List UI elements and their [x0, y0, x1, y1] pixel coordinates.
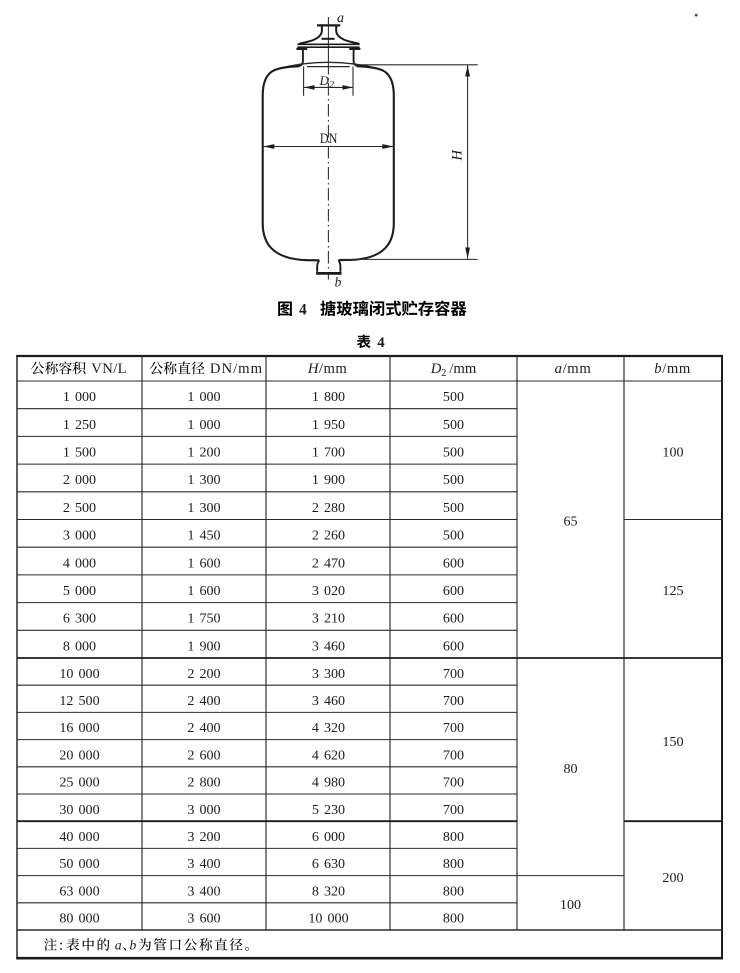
- svg-text:2 800: 2 800: [187, 775, 220, 791]
- svg-text:80: 80: [563, 761, 577, 777]
- svg-text:700: 700: [443, 720, 464, 736]
- svg-text:a: a: [115, 938, 122, 953]
- svg-text:1 600: 1 600: [187, 555, 220, 571]
- svg-text:H/mm: H/mm: [307, 361, 348, 377]
- svg-text:6 630: 6 630: [312, 856, 345, 872]
- svg-text:2 260: 2 260: [312, 528, 345, 544]
- svg-text:3 400: 3 400: [187, 883, 220, 899]
- svg-text:63 000: 63 000: [59, 883, 99, 899]
- svg-text:H: H: [450, 148, 466, 161]
- svg-text:2 200: 2 200: [187, 666, 220, 682]
- svg-text:700: 700: [443, 802, 464, 818]
- svg-text:10 000: 10 000: [59, 666, 99, 682]
- svg-text:700: 700: [443, 666, 464, 682]
- svg-text:2: 2: [329, 81, 334, 91]
- svg-text:2 400: 2 400: [187, 720, 220, 736]
- svg-text:600: 600: [443, 638, 464, 654]
- svg-text:1 750: 1 750: [187, 611, 220, 627]
- svg-text:200: 200: [662, 870, 683, 886]
- svg-text:4: 4: [377, 335, 385, 351]
- svg-text:4 620: 4 620: [312, 747, 345, 763]
- svg-text:1 300: 1 300: [187, 500, 220, 516]
- svg-text:700: 700: [443, 747, 464, 763]
- svg-text:DN: DN: [320, 131, 338, 147]
- svg-text:b: b: [335, 275, 342, 290]
- svg-text:150: 150: [662, 734, 683, 750]
- svg-text:3 300: 3 300: [312, 666, 345, 682]
- svg-text:1 700: 1 700: [312, 444, 345, 460]
- svg-text:125: 125: [662, 583, 683, 599]
- svg-text:25 000: 25 000: [59, 775, 99, 791]
- svg-text:500: 500: [443, 472, 464, 488]
- svg-text:2 000: 2 000: [63, 472, 96, 488]
- svg-text:1 200: 1 200: [187, 444, 220, 460]
- svg-text:3 460: 3 460: [312, 638, 345, 654]
- svg-text:65: 65: [563, 514, 577, 530]
- svg-text:500: 500: [443, 500, 464, 516]
- svg-text:4 000: 4 000: [63, 555, 96, 571]
- svg-text:700: 700: [443, 693, 464, 709]
- svg-text:3 020: 3 020: [312, 583, 345, 599]
- svg-text:VN/L: VN/L: [91, 361, 127, 377]
- svg-text:100: 100: [662, 444, 683, 460]
- svg-text:20 000: 20 000: [59, 747, 99, 763]
- svg-text:2 500: 2 500: [63, 500, 96, 516]
- svg-text:2 600: 2 600: [187, 747, 220, 763]
- svg-text:8 000: 8 000: [63, 638, 96, 654]
- svg-text:500: 500: [443, 444, 464, 460]
- svg-text:1 900: 1 900: [312, 472, 345, 488]
- svg-text:1 800: 1 800: [312, 389, 345, 405]
- svg-text:1 950: 1 950: [312, 417, 345, 433]
- svg-text:D: D: [319, 73, 330, 88]
- svg-text:3 460: 3 460: [312, 693, 345, 709]
- svg-text:3 400: 3 400: [187, 856, 220, 872]
- svg-text:3 210: 3 210: [312, 611, 345, 627]
- svg-text:1 600: 1 600: [187, 583, 220, 599]
- svg-text:800: 800: [443, 856, 464, 872]
- svg-text:2 280: 2 280: [312, 500, 345, 516]
- svg-text:3 200: 3 200: [187, 829, 220, 845]
- svg-text:3 600: 3 600: [187, 911, 220, 927]
- svg-text:600: 600: [443, 583, 464, 599]
- svg-text:2 400: 2 400: [187, 693, 220, 709]
- svg-text:a: a: [337, 11, 344, 26]
- svg-text:100: 100: [560, 897, 581, 913]
- svg-text:4 980: 4 980: [312, 775, 345, 791]
- svg-text:1 000: 1 000: [187, 389, 220, 405]
- svg-text:50 000: 50 000: [59, 856, 99, 872]
- svg-text:1 300: 1 300: [187, 472, 220, 488]
- svg-text:4: 4: [299, 302, 307, 319]
- svg-text:3 000: 3 000: [63, 528, 96, 544]
- svg-text:8 320: 8 320: [312, 883, 345, 899]
- svg-text:1 250: 1 250: [63, 417, 96, 433]
- svg-text:4 320: 4 320: [312, 720, 345, 736]
- svg-text:1 000: 1 000: [63, 389, 96, 405]
- svg-text:1 500: 1 500: [63, 444, 96, 460]
- svg-text:6 000: 6 000: [312, 829, 345, 845]
- svg-text:b/mm: b/mm: [654, 361, 691, 377]
- svg-text:1 450: 1 450: [187, 528, 220, 544]
- svg-text:10 000: 10 000: [308, 911, 348, 927]
- svg-text:DN/mm: DN/mm: [210, 361, 263, 377]
- svg-text:500: 500: [443, 417, 464, 433]
- svg-text:600: 600: [443, 555, 464, 571]
- svg-text:1 000: 1 000: [187, 417, 220, 433]
- svg-text:2 470: 2 470: [312, 555, 345, 571]
- svg-text:3 000: 3 000: [187, 802, 220, 818]
- svg-text:80 000: 80 000: [59, 911, 99, 927]
- svg-text:16 000: 16 000: [59, 720, 99, 736]
- svg-text:800: 800: [443, 829, 464, 845]
- svg-text:40 000: 40 000: [59, 829, 99, 845]
- svg-text:D2 /mm: D2 /mm: [430, 361, 477, 379]
- svg-text:700: 700: [443, 775, 464, 791]
- svg-text:6 300: 6 300: [63, 611, 96, 627]
- svg-text:12 500: 12 500: [59, 693, 99, 709]
- svg-text:5 000: 5 000: [63, 583, 96, 599]
- svg-text:500: 500: [443, 389, 464, 405]
- svg-text:800: 800: [443, 883, 464, 899]
- svg-text:1 900: 1 900: [187, 638, 220, 654]
- svg-text:b: b: [130, 938, 137, 953]
- svg-text:5 230: 5 230: [312, 802, 345, 818]
- svg-text:800: 800: [443, 911, 464, 927]
- svg-text:500: 500: [443, 528, 464, 544]
- svg-text:600: 600: [443, 611, 464, 627]
- svg-text:a/mm: a/mm: [555, 361, 592, 377]
- svg-text:30 000: 30 000: [59, 802, 99, 818]
